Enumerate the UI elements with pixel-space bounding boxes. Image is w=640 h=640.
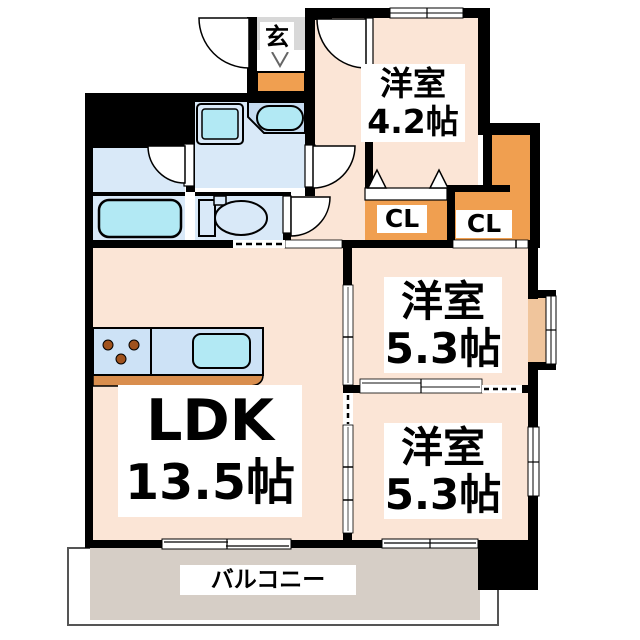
- sink: [193, 334, 250, 368]
- closet-folding-doors: [365, 188, 447, 200]
- ldk-label: LDK 13.5帖: [118, 385, 302, 517]
- genkan-step: [257, 50, 305, 72]
- balcony-label: バルコニー: [180, 565, 356, 595]
- closet-right-label: CL: [456, 210, 512, 238]
- bathtub: [99, 200, 181, 237]
- washing-machine: [202, 109, 238, 139]
- burner: [116, 354, 126, 364]
- room53-lower-label: 洋室 5.3帖: [384, 423, 502, 519]
- floorplan: 玄 洋室 4.2帖 CL CL 洋室 5.3帖 洋室 5.3帖 LDK 13.5…: [0, 0, 640, 640]
- toilet-bowl: [215, 201, 267, 235]
- hall-ldk-opening: [285, 240, 342, 248]
- entrance-door-swing: [199, 18, 249, 68]
- closet-left-label: CL: [377, 205, 427, 233]
- genkan-text: 玄: [265, 22, 289, 52]
- toilet-tank: [199, 200, 215, 236]
- toilet-door-leaf: [283, 196, 291, 233]
- toilet-button: [214, 196, 226, 205]
- room42-label: 洋室 4.2帖: [361, 64, 465, 142]
- stove: [93, 328, 151, 375]
- burner: [129, 340, 139, 350]
- burner: [103, 340, 113, 350]
- wash-basin: [257, 106, 303, 130]
- floorplan-drawing: [0, 0, 640, 640]
- genkan-label: 玄: [260, 22, 294, 52]
- shoe-cabinet: [257, 72, 305, 92]
- room53-upper-label: 洋室 5.3帖: [384, 277, 502, 373]
- bay-window-sill: [528, 297, 548, 363]
